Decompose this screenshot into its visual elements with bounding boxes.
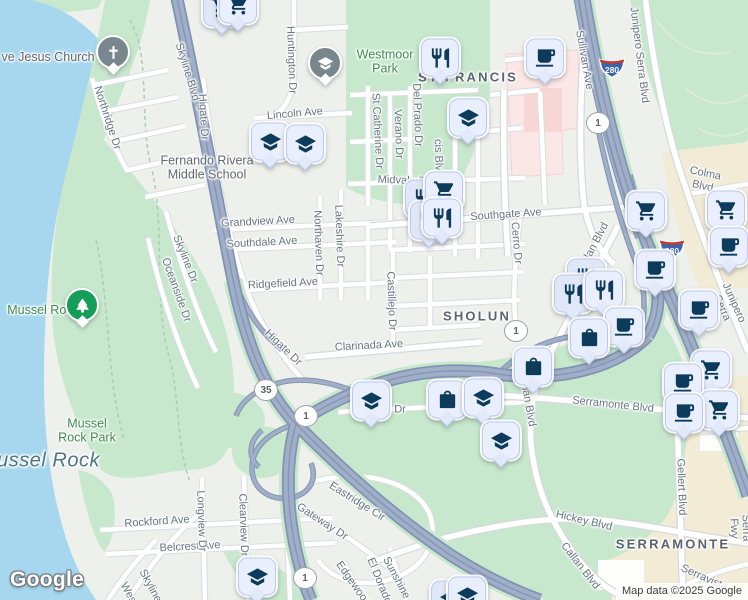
- bag-pin[interactable]: [514, 347, 552, 391]
- interstate-shield: 280: [598, 56, 626, 85]
- grad-pin[interactable]: [449, 98, 487, 142]
- map-attribution[interactable]: Map data ©2025 Google: [616, 583, 748, 600]
- grad-icon: [259, 130, 282, 153]
- coffee-pin[interactable]: [605, 307, 643, 351]
- cart-icon: [708, 398, 731, 421]
- cart-icon: [715, 198, 738, 221]
- restaurant-pin[interactable]: [423, 198, 461, 242]
- svg-text:280: 280: [605, 65, 619, 75]
- coffee-pin[interactable]: [665, 393, 703, 437]
- grad-pin[interactable]: [286, 124, 324, 168]
- coffee-icon: [613, 315, 636, 338]
- state-route-shield: 1: [586, 112, 610, 134]
- cart-icon: [227, 0, 250, 16]
- bag-pin[interactable]: [428, 380, 466, 424]
- grad-icon: [472, 386, 495, 409]
- grad-icon: [490, 429, 513, 452]
- coffee-icon: [534, 46, 557, 69]
- coffee-icon: [673, 401, 696, 424]
- state-route-shield: 1: [293, 567, 317, 589]
- restaurant-icon: [429, 46, 452, 69]
- google-logo[interactable]: Google: [10, 568, 84, 592]
- coffee-icon: [672, 371, 695, 394]
- grad-icon: [456, 584, 479, 600]
- grad-pin[interactable]: [352, 381, 390, 425]
- grad-pin[interactable]: [251, 122, 289, 166]
- cart-icon: [635, 199, 658, 222]
- coffee-icon: [718, 235, 741, 258]
- grad-icon: [246, 565, 269, 588]
- bag-icon: [522, 355, 545, 378]
- coffee-pin[interactable]: [526, 38, 564, 82]
- grad-pin[interactable]: [482, 421, 520, 465]
- cart-pin[interactable]: [219, 0, 257, 29]
- pins-layer: [0, 0, 748, 600]
- cart-pin[interactable]: [627, 191, 665, 235]
- grad-icon: [457, 106, 480, 129]
- school-pin[interactable]: [308, 46, 342, 84]
- cart-pin[interactable]: [700, 390, 738, 434]
- grad-pin[interactable]: [448, 576, 486, 600]
- tree-pin[interactable]: [65, 288, 99, 326]
- coffee-pin[interactable]: [710, 227, 748, 271]
- restaurant-icon: [431, 206, 454, 229]
- state-route-shield: 1: [294, 405, 318, 427]
- grad-pin[interactable]: [238, 557, 276, 600]
- map-canvas[interactable]: ve Jesus ChurchNorthridge DrSkyline Blvd…: [0, 0, 748, 600]
- restaurant-icon: [562, 282, 585, 305]
- church-icon: [105, 43, 122, 60]
- state-route-shield: 35: [254, 379, 278, 401]
- cart-icon: [700, 358, 723, 381]
- bag-icon: [578, 326, 601, 349]
- grad-icon: [360, 389, 383, 412]
- coffee-pin[interactable]: [636, 250, 674, 294]
- state-route-shield: 1: [504, 320, 528, 342]
- grad-icon: [294, 132, 317, 155]
- bag-icon: [436, 388, 459, 411]
- church-pin[interactable]: [96, 35, 130, 73]
- coffee-icon: [644, 258, 667, 281]
- restaurant-icon: [593, 278, 616, 301]
- tree-icon: [74, 296, 91, 313]
- grad-pin[interactable]: [464, 378, 502, 422]
- bag-pin[interactable]: [570, 318, 608, 362]
- school-icon: [317, 54, 334, 71]
- coffee-pin[interactable]: [680, 290, 718, 334]
- restaurant-pin[interactable]: [421, 38, 459, 82]
- coffee-icon: [688, 298, 711, 321]
